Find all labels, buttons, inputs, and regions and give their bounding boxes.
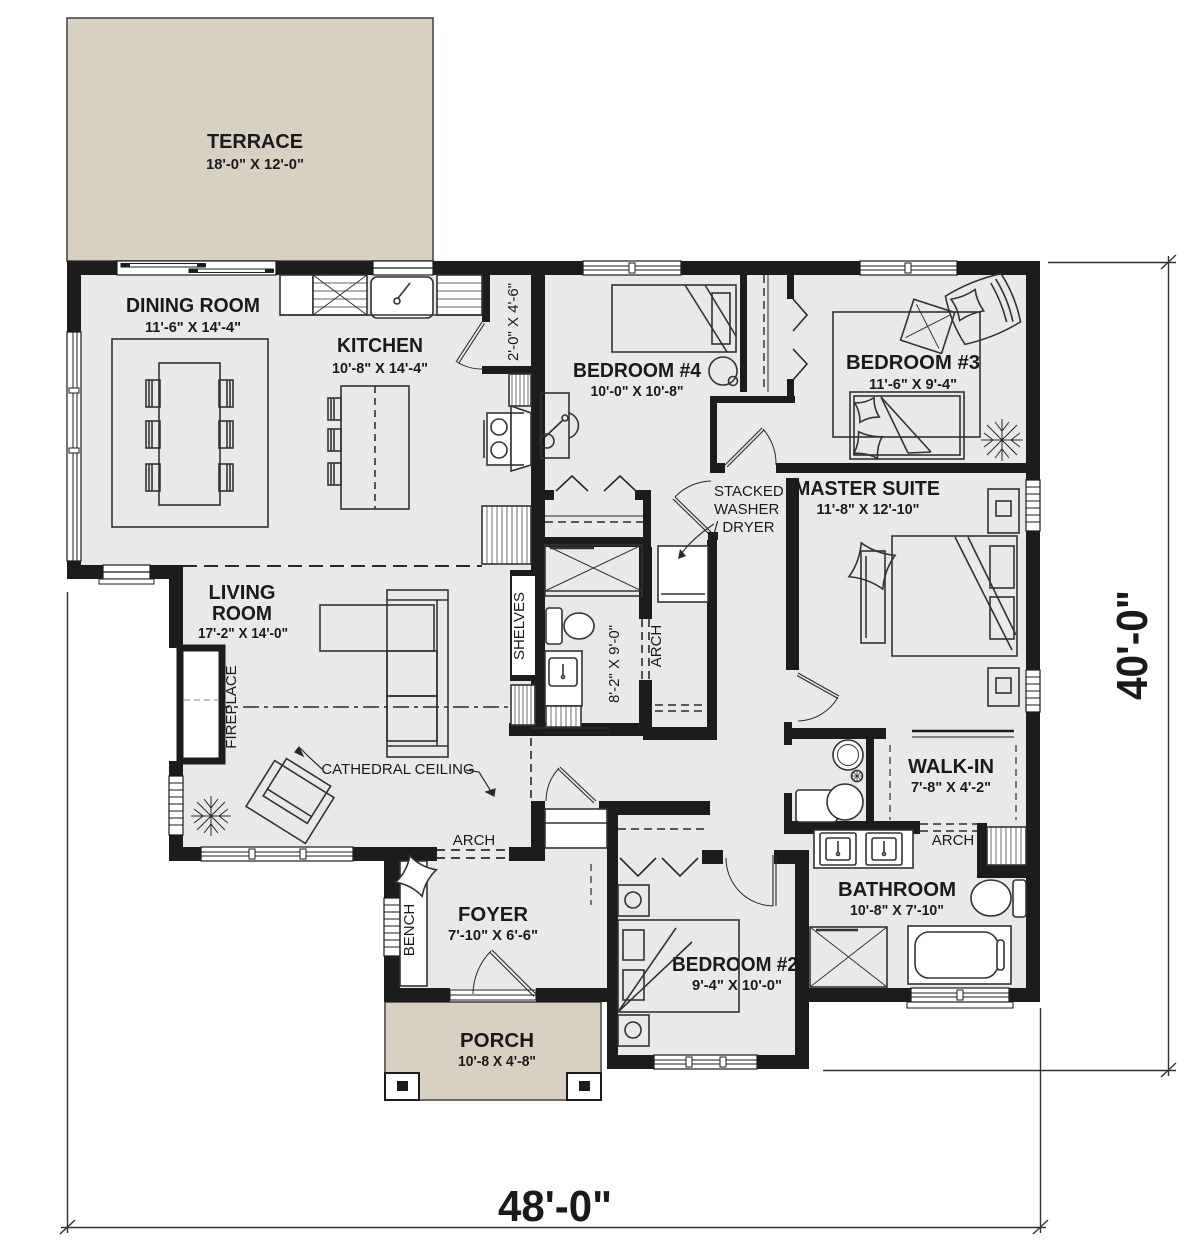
svg-text:7'-10" X 6'-6": 7'-10" X 6'-6" [448, 927, 538, 944]
svg-text:KITCHEN: KITCHEN [337, 334, 423, 357]
svg-text:40'-0": 40'-0" [1108, 590, 1157, 700]
svg-text:MASTER SUITE: MASTER SUITE [794, 477, 940, 500]
svg-text:17'-2" X 14'-0": 17'-2" X 14'-0" [198, 625, 288, 642]
svg-text:10'-8" X 7'-10": 10'-8" X 7'-10" [850, 902, 944, 919]
svg-text:9'-4" X 10'-0": 9'-4" X 10'-0" [692, 977, 782, 994]
svg-text:BEDROOM #3: BEDROOM #3 [846, 351, 980, 374]
svg-text:WASHER: WASHER [714, 501, 779, 518]
svg-text:10'-8 X 4'-8": 10'-8 X 4'-8" [458, 1053, 536, 1070]
svg-text:BENCH: BENCH [401, 904, 418, 957]
svg-text:8'-2" X 9'-0": 8'-2" X 9'-0" [606, 625, 623, 703]
svg-text:FOYER: FOYER [458, 903, 528, 926]
svg-text:/ DRYER: / DRYER [714, 519, 775, 536]
svg-text:2'-0" X 4'-6": 2'-0" X 4'-6" [505, 283, 522, 361]
svg-text:BEDROOM #2: BEDROOM #2 [672, 953, 798, 976]
svg-text:PORCH: PORCH [460, 1029, 534, 1052]
svg-text:WALK-IN: WALK-IN [908, 755, 994, 778]
svg-text:ROOM: ROOM [212, 602, 272, 625]
svg-text:11'-8" X 12'-10": 11'-8" X 12'-10" [817, 501, 920, 518]
svg-text:CATHEDRAL CEILING: CATHEDRAL CEILING [321, 761, 474, 778]
svg-text:11'-6" X 9'-4": 11'-6" X 9'-4" [869, 376, 957, 393]
svg-text:BATHROOM: BATHROOM [838, 878, 956, 901]
svg-text:18'-0" X 12'-0": 18'-0" X 12'-0" [206, 156, 304, 173]
svg-text:ARCH: ARCH [932, 832, 975, 849]
svg-text:ARCH: ARCH [648, 625, 665, 668]
svg-text:SHELVES: SHELVES [511, 592, 528, 660]
svg-text:11'-6" X 14'-4": 11'-6" X 14'-4" [145, 319, 241, 336]
svg-text:48'-0": 48'-0" [498, 1182, 612, 1231]
svg-text:10'-0" X 10'-8": 10'-0" X 10'-8" [591, 383, 684, 400]
svg-text:FIREPLACE: FIREPLACE [223, 665, 240, 748]
svg-text:BEDROOM #4: BEDROOM #4 [573, 359, 702, 382]
svg-text:7'-8" X 4'-2": 7'-8" X 4'-2" [911, 779, 991, 796]
svg-text:TERRACE: TERRACE [207, 130, 303, 153]
svg-text:ARCH: ARCH [453, 832, 496, 849]
svg-text:STACKED: STACKED [714, 483, 784, 500]
svg-text:10'-8" X 14'-4": 10'-8" X 14'-4" [332, 360, 428, 377]
svg-text:LIVING: LIVING [209, 581, 276, 604]
svg-text:DINING ROOM: DINING ROOM [126, 294, 260, 317]
